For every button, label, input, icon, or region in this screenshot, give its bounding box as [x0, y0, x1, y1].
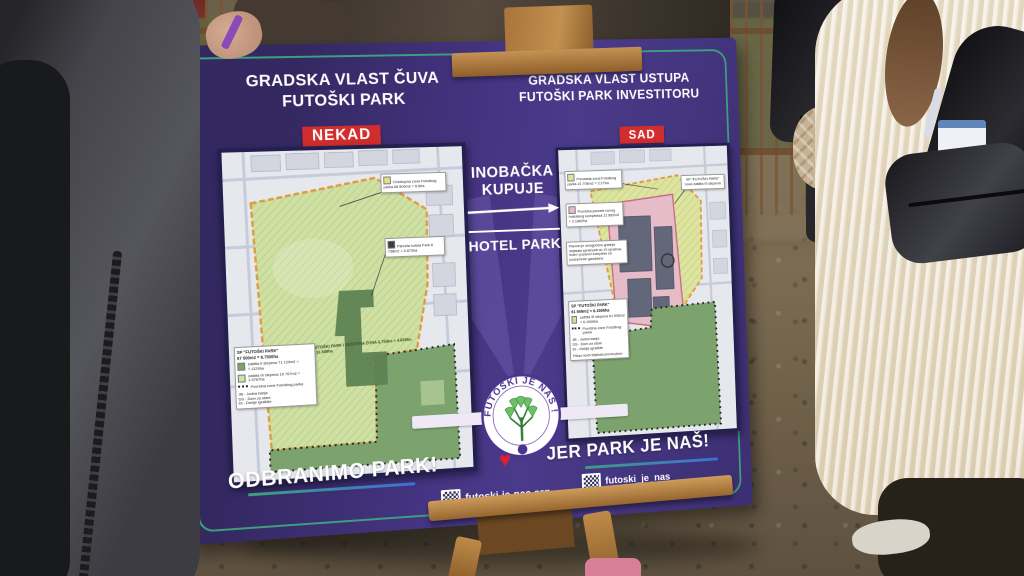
photo-of-protest-board: GRADSKA VLAST ČUVA FUTOŠKI PARK GRADSKA … [0, 0, 1024, 576]
protest-board: GRADSKA VLAST ČUVA FUTOŠKI PARK GRADSKA … [168, 38, 753, 546]
center-line2: KUPUJE [461, 180, 564, 201]
sad-zone-label: Preostala zona Futoškog parka 21 706m2 =… [564, 169, 622, 190]
legend-item: Površina zone Futoškog parka [572, 324, 626, 336]
map-sad: Preostala zona Futoškog parka 21 706m2 =… [555, 143, 739, 442]
black-leather-pouch [882, 139, 1024, 266]
light-green-swatch-icon [571, 316, 577, 324]
dotted-line-icon [572, 327, 580, 329]
legend-item-text: Površina zone Futoškog parka [583, 324, 626, 335]
map-nekad: Celokupna zona Futoškog parka 68 500m2 =… [217, 142, 477, 486]
dark-green-swatch-icon [237, 363, 245, 371]
dotted-line-icon [238, 385, 248, 388]
nekad-zone-label: Celokupna zona Futoškog parka 68 500m2 =… [380, 172, 446, 193]
sad-note-box: Planom je omogućena gradnja objekata spr… [566, 239, 628, 265]
center-message: INOBAČKA KUPUJE HOTEL PARK [461, 163, 567, 256]
map-nekad-graphic [221, 146, 473, 482]
sad-zone-text: Preostala zona Futoškog parka 21 706m2 =… [567, 175, 616, 186]
sad-badge: SAD [619, 126, 664, 144]
nekad-legend: SP "FUTOŠKI PARK" 67 500m2 = 6.7500ha za… [234, 343, 318, 410]
nekad-zone-text: Celokupna zona Futoškog parka 68 500m2 =… [383, 178, 436, 189]
pink-bucket [585, 558, 641, 576]
right-title: GRADSKA VLAST USTUPA FUTOŠKI PARK INVEST… [492, 70, 724, 107]
right-arrow-icon [466, 201, 562, 220]
light-green-swatch-icon [238, 374, 246, 382]
left-title: GRADSKA VLAST ČUVA FUTOŠKI PARK [216, 67, 467, 114]
sad-side-label: SP "FUTOŠKI PARK" nova zaštita III stepe… [681, 174, 725, 190]
legend-footnote: Prikaz novih objekata prema planu [573, 351, 627, 358]
nekad-parcel-label: Parcela hotela Park 8 738m2 = 0.873ha [385, 236, 446, 258]
map-sad-graphic [558, 146, 737, 439]
divider-rule [468, 228, 560, 233]
sad-legend: SP "FUTOŠKI PARK" 61 506m2 = 6.1506ha za… [568, 298, 629, 361]
sad-parcel-label: Površina parcele novog hotelskog komplek… [566, 202, 624, 227]
heart-icon: ♥ [499, 449, 512, 471]
sad-parcel-text: Površina parcele novog hotelskog komplek… [569, 208, 620, 224]
center-line1: INOBAČKA [461, 163, 564, 183]
dark-sleeve-foreground [0, 60, 70, 576]
